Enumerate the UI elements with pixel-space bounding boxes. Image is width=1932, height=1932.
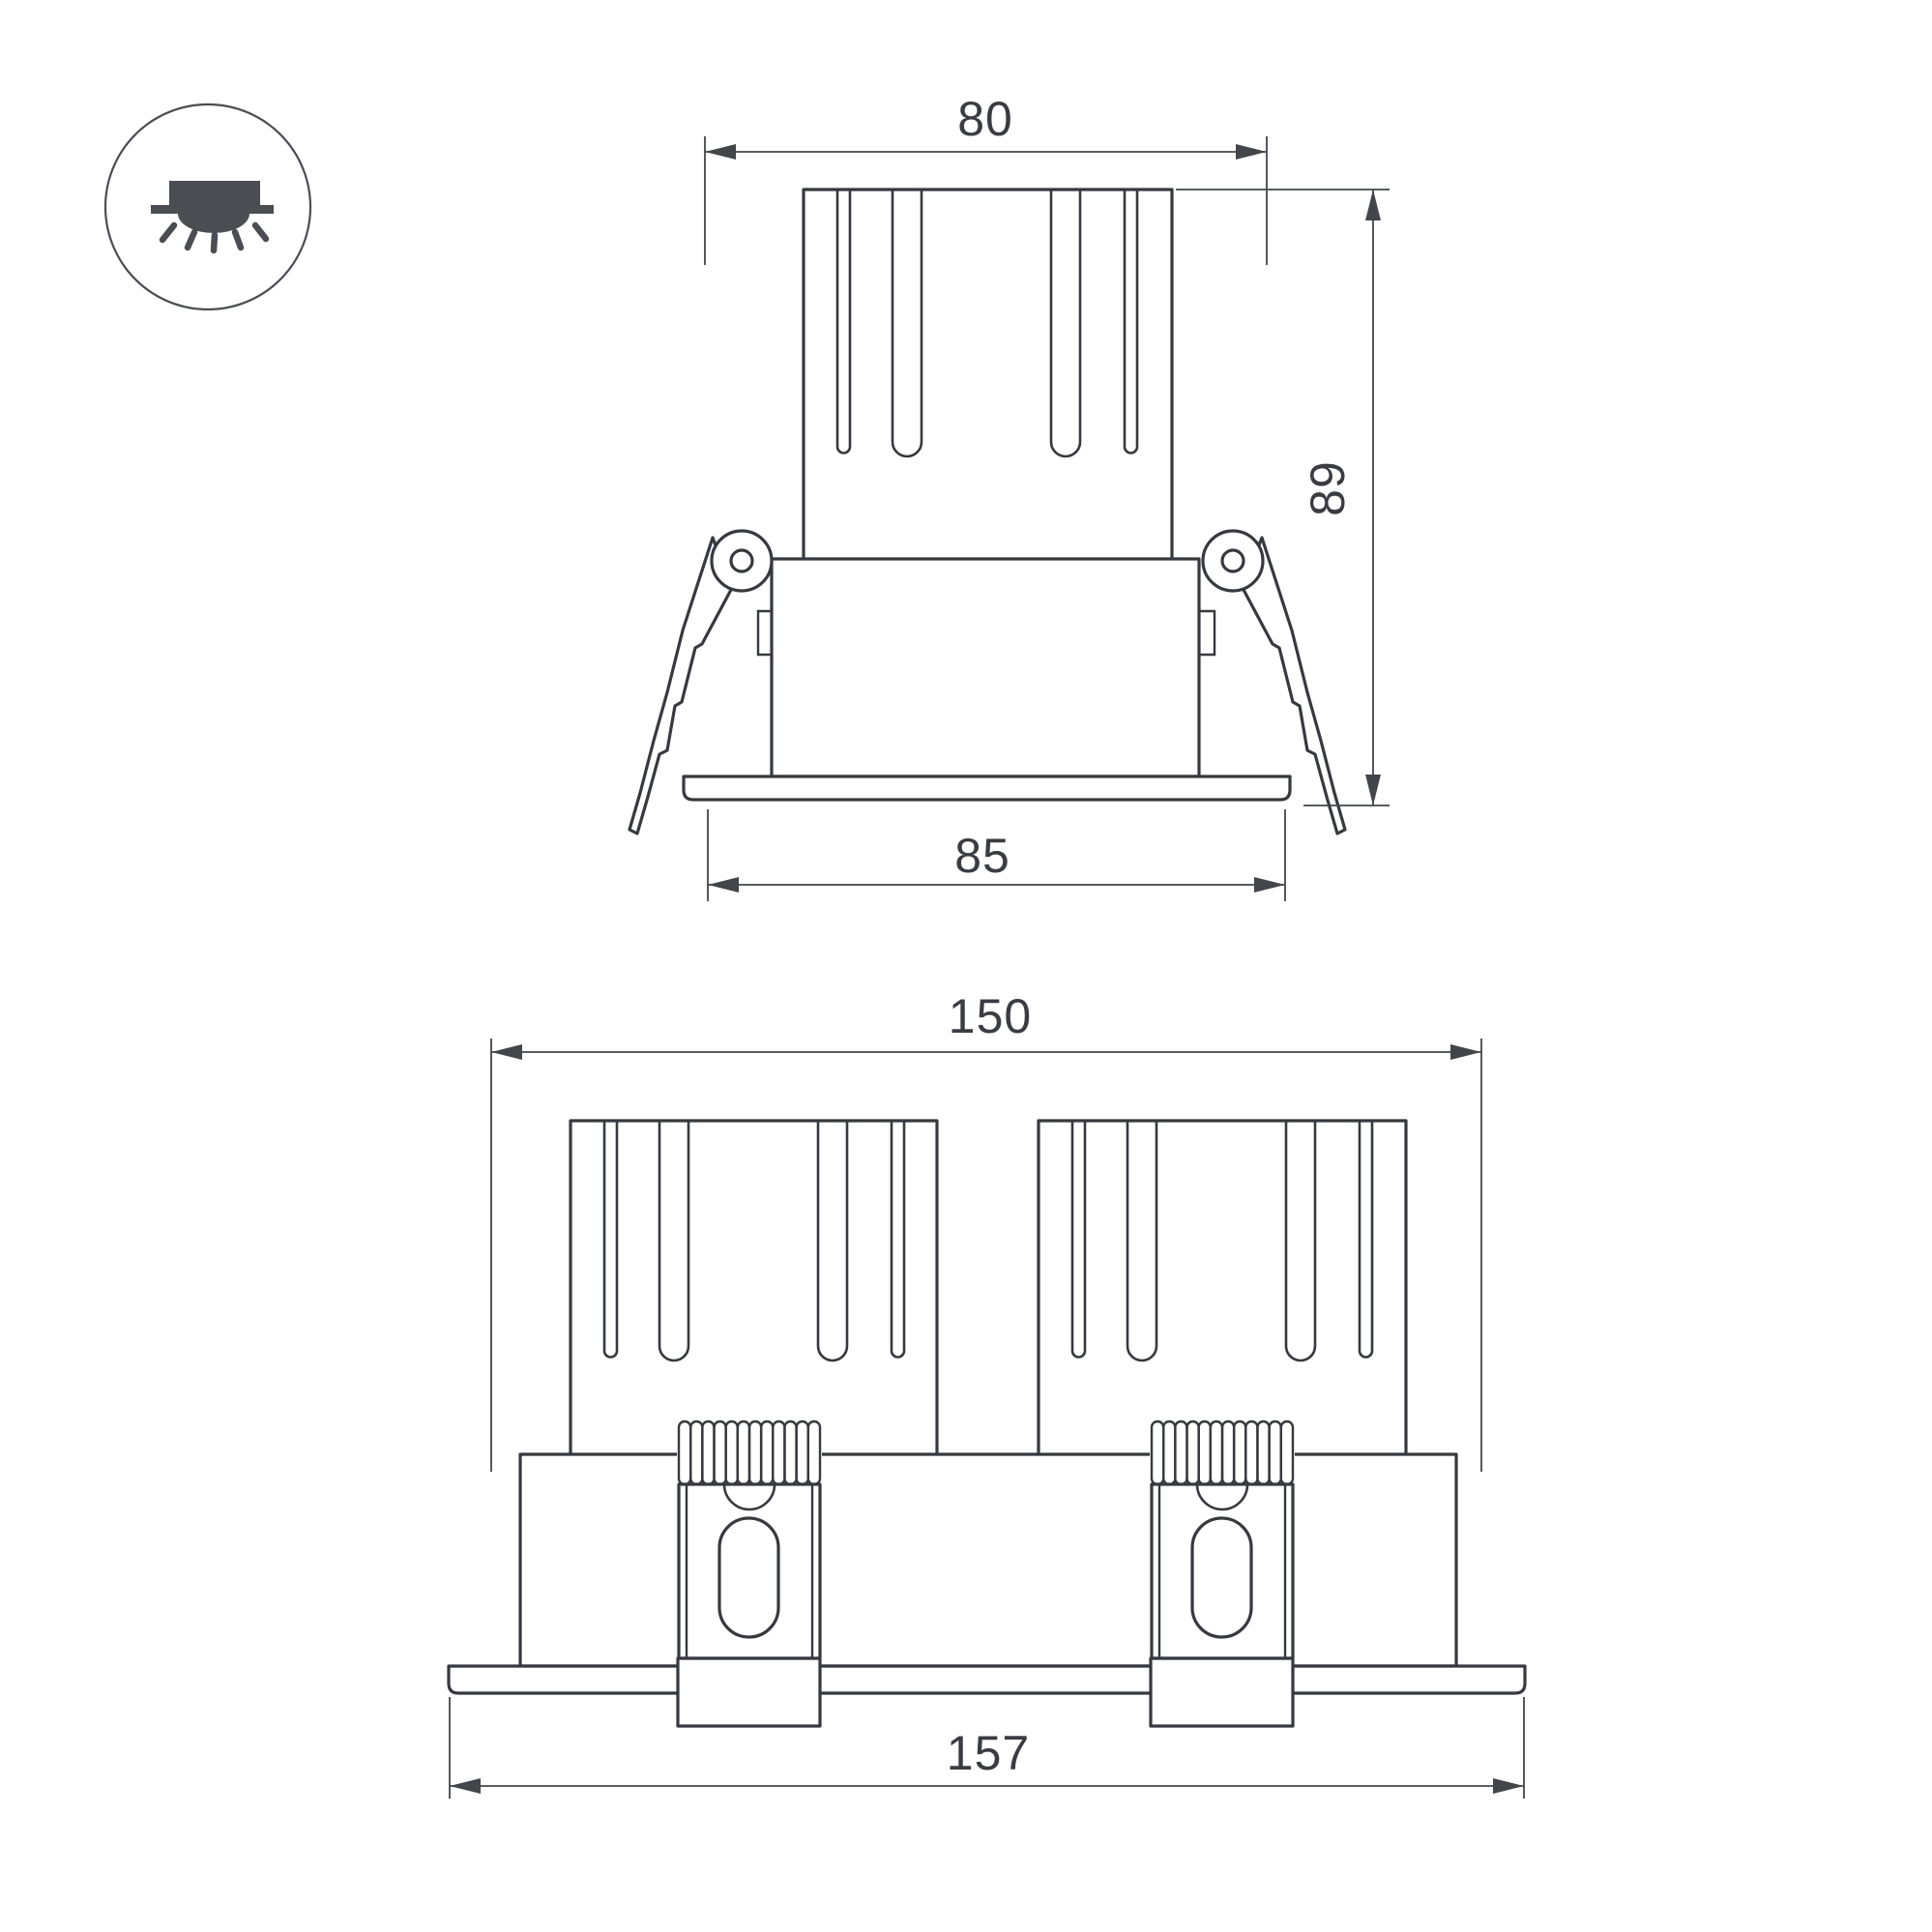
icon-lamp-dome: [178, 214, 249, 233]
double-right-heatsink: [1039, 1121, 1406, 1454]
double-right-bracket-foot: [1151, 1658, 1293, 1726]
double-housing: [520, 1454, 1456, 1666]
double-left-heatsink-fins: [604, 1121, 904, 1361]
double-left-knob-bracket: [677, 1420, 822, 1726]
double-left-slot: [719, 1518, 778, 1637]
dimension-157: 157: [450, 1697, 1524, 1799]
recessed-downlight-icon: [105, 104, 310, 309]
dimension-80: 80: [705, 92, 1267, 265]
double-right-slot: [1192, 1518, 1251, 1637]
double-right-heatsink-fins: [1072, 1121, 1372, 1361]
single-flange: [684, 776, 1290, 800]
dimension-89-label: 89: [1301, 460, 1355, 516]
single-left-pivot-hole: [731, 550, 752, 571]
double-flange: [449, 1666, 1525, 1693]
dimension-85: 85: [708, 809, 1285, 901]
dimension-85-label: 85: [954, 829, 1010, 883]
double-fixture-drawing: 150 157: [449, 989, 1525, 1799]
single-right-clip-notch: [1199, 611, 1215, 655]
single-heatsink-fins: [837, 190, 1137, 456]
single-housing: [772, 559, 1199, 776]
icon-lamp-flange: [151, 205, 274, 214]
dimension-157-label: 157: [947, 1726, 1030, 1780]
technical-drawing-canvas: 80 89 85: [0, 0, 1932, 1932]
dimension-80-label: 80: [957, 92, 1013, 146]
dimension-150-label: 150: [949, 989, 1032, 1043]
double-right-knob-bracket: [1150, 1420, 1295, 1726]
dimension-89: 89: [1176, 190, 1390, 805]
dimension-150: 150: [491, 989, 1481, 1472]
single-fixture-drawing: 80 89 85: [629, 92, 1390, 901]
double-left-heatsink: [571, 1121, 937, 1454]
icon-lamp-housing: [169, 181, 260, 208]
single-right-pivot-hole: [1222, 550, 1244, 571]
double-left-bracket-foot: [678, 1658, 820, 1726]
single-heatsink: [804, 190, 1172, 559]
single-left-clip-notch: [758, 611, 772, 655]
